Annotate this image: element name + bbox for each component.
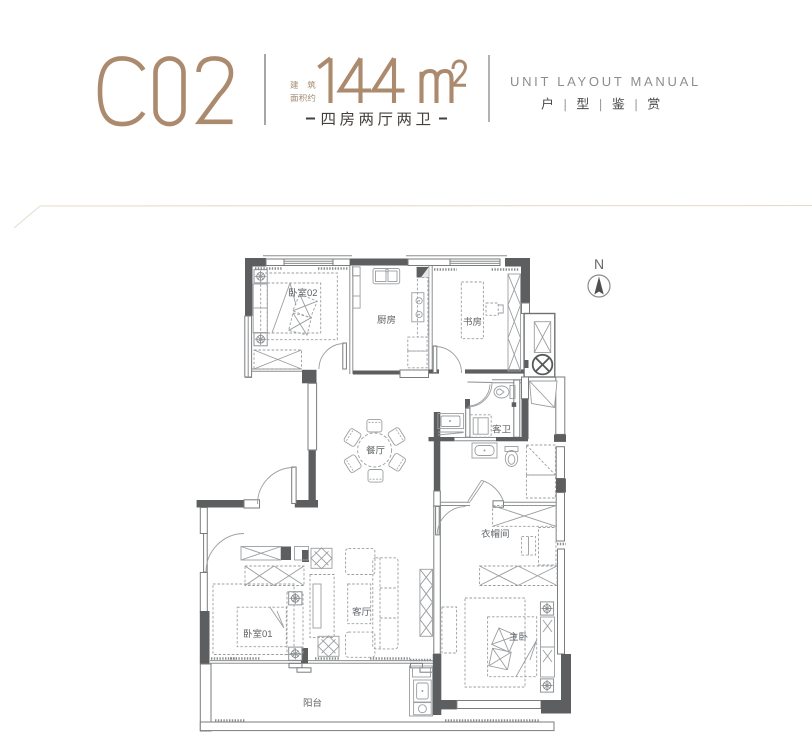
svg-text:卧室01: 卧室01 (243, 628, 273, 640)
svg-text:四房两厅两卫: 四房两厅两卫 (320, 111, 434, 129)
svg-text:主卧: 主卧 (509, 632, 529, 643)
svg-text:阳台: 阳台 (303, 697, 322, 709)
svg-text:UNIT LAYOUT MANUAL: UNIT LAYOUT MANUAL (510, 74, 701, 89)
svg-text:厨房: 厨房 (377, 315, 396, 326)
svg-text:面积约: 面积约 (290, 93, 316, 103)
svg-text:卧室02: 卧室02 (288, 287, 318, 299)
svg-text:客厅: 客厅 (352, 606, 372, 618)
svg-text:衣帽间: 衣帽间 (481, 528, 510, 540)
svg-text:客卫: 客卫 (492, 424, 512, 436)
svg-text:餐厅: 餐厅 (366, 446, 386, 457)
svg-text:N: N (594, 256, 604, 272)
svg-text:建 筑: 建 筑 (290, 80, 319, 90)
svg-text:书房: 书房 (463, 317, 482, 328)
